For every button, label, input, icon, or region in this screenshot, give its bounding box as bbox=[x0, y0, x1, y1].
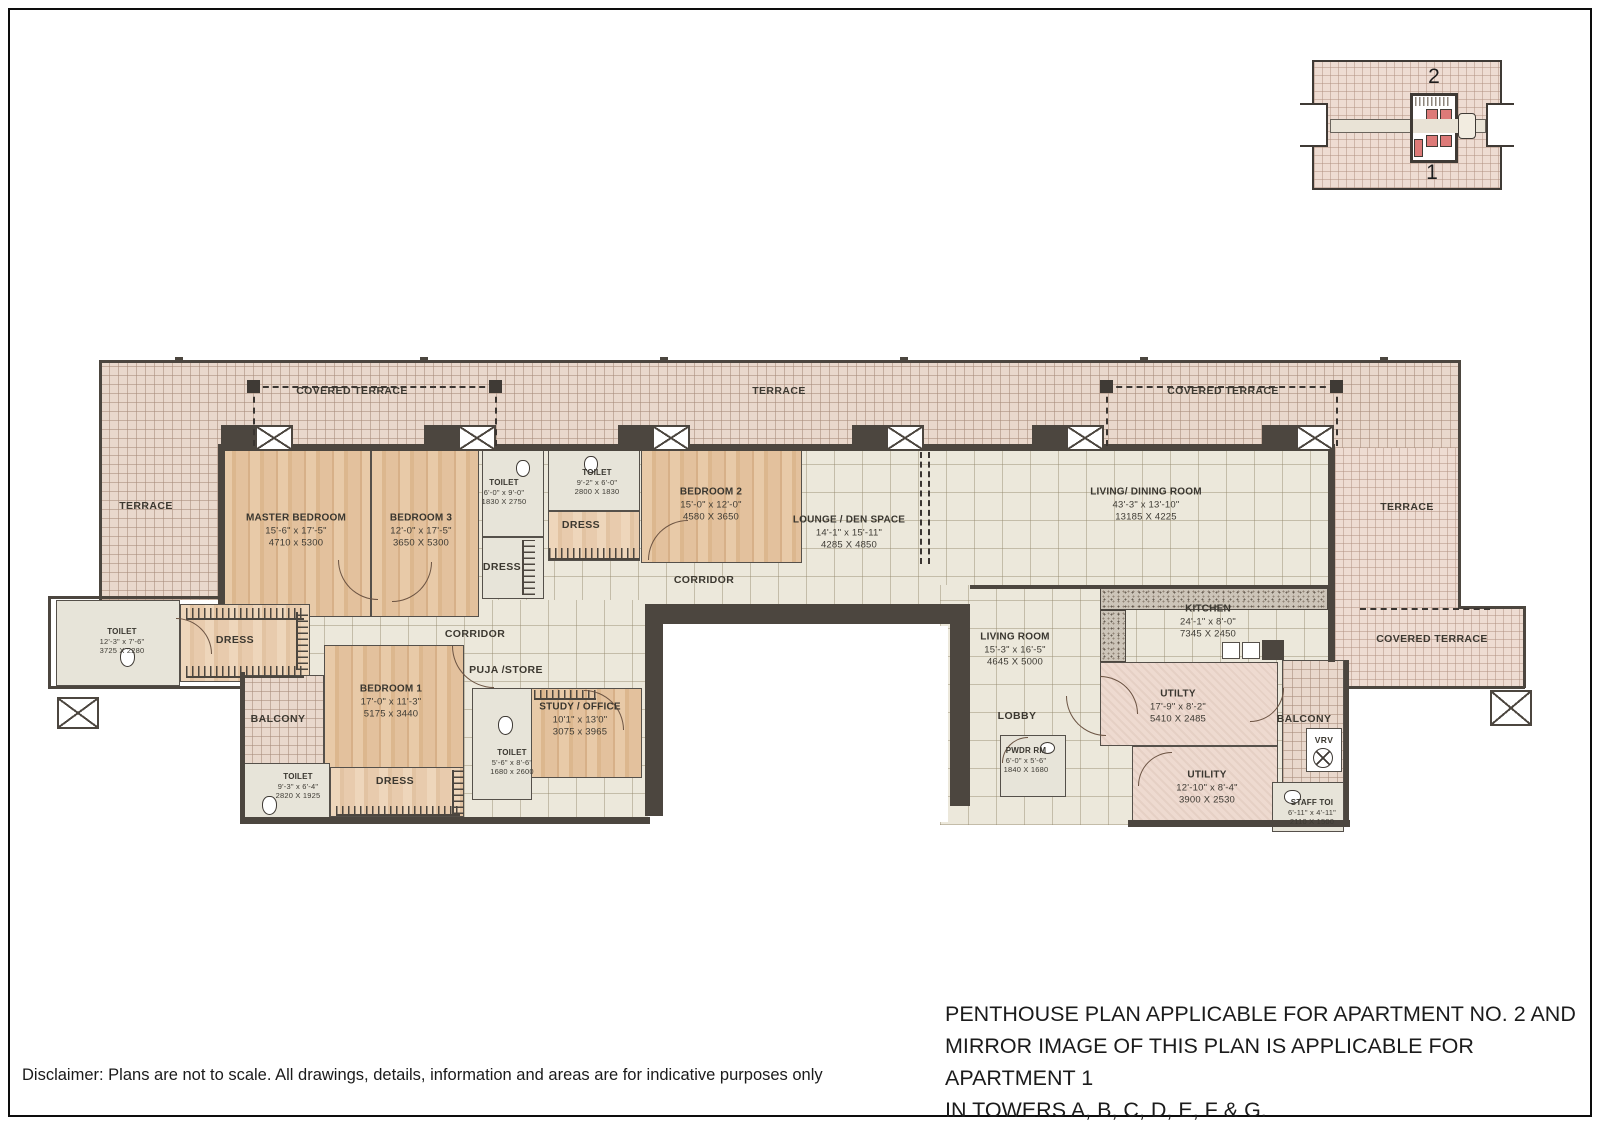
room-label-toilet-a: TOILET 6'-0" x 9'-0" 1830 X 2750 bbox=[482, 478, 527, 507]
shaft-x-box bbox=[458, 425, 496, 451]
key-plan-apartment-1-label: 1 bbox=[1426, 161, 1438, 185]
closet-hatch bbox=[452, 770, 464, 814]
key-plan-core-hatch bbox=[1415, 97, 1451, 106]
toilet-fixture bbox=[516, 460, 530, 477]
room-label-powder-room: PWDR RM 6'-0" x 5'-6" 1840 X 1680 bbox=[1004, 746, 1049, 775]
room-dims-mm: 1680 x 2600 bbox=[490, 767, 534, 777]
area-label-terrace-top: TERRACE bbox=[752, 385, 806, 397]
room-label-toilet-e: TOILET 9'-3" x 6'-4" 2820 X 1925 bbox=[276, 772, 321, 801]
area-label-covered-terrace-right: COVERED TERRACE bbox=[1376, 633, 1488, 645]
area-label-dress-4: DRESS bbox=[376, 775, 414, 787]
area-label-covered-terrace-top-right: COVERED TERRACE bbox=[1167, 385, 1279, 397]
room-dims-mm: 1840 X 1680 bbox=[1004, 765, 1049, 775]
room-dims-mm: 2820 X 1925 bbox=[276, 791, 321, 801]
wall-left-wing-outer bbox=[240, 672, 245, 822]
room-dims-mm: 2800 X 1830 bbox=[575, 487, 620, 497]
wall-toilet-c-bottom bbox=[48, 686, 242, 689]
terrace-right-column bbox=[1335, 448, 1460, 608]
room-label-toilet-d: TOILET 5'-6" x 8'-6" 1680 x 2600 bbox=[490, 748, 534, 777]
room-label-staff-toilet: STAFF TOI 6'-11" x 4'-11" 2110 X 1500 bbox=[1288, 798, 1336, 827]
area-label-corridor-top: CORRIDOR bbox=[674, 574, 734, 586]
shaft-x-box bbox=[652, 425, 690, 451]
area-label-covered-terrace-left: COVERED TERRACE bbox=[296, 385, 408, 397]
room-name: BEDROOM 3 bbox=[390, 512, 452, 525]
area-label-corridor-left: CORRIDOR bbox=[445, 628, 505, 640]
room-name: MASTER BEDROOM bbox=[246, 512, 346, 525]
wall-notch-left bbox=[645, 604, 663, 816]
area-label-puja-store: PUJA /STORE bbox=[469, 664, 543, 676]
column-tick bbox=[420, 357, 428, 362]
column-tick bbox=[1380, 357, 1388, 362]
room-dims-ft: 6'-11" x 4'-11" bbox=[1288, 807, 1336, 817]
room-name: UTILITY bbox=[1176, 769, 1237, 782]
area-label-vrv: VRV bbox=[1315, 735, 1334, 745]
column-block bbox=[221, 425, 255, 451]
room-dims-ft: 6'-0" x 9'-0" bbox=[482, 487, 527, 497]
room-name: TOILET bbox=[575, 468, 620, 478]
lounge-divider-dashed bbox=[928, 452, 930, 564]
wall-notch-top bbox=[645, 604, 970, 624]
area-label-dress-1: DRESS bbox=[216, 634, 254, 646]
covered-terrace-right-area bbox=[1335, 608, 1525, 688]
room-label-bedroom-1: BEDROOM 1 17'-0" x 11'-3" 5175 x 3440 bbox=[360, 683, 422, 721]
column-tick bbox=[660, 357, 668, 362]
shaft-x-box bbox=[1066, 425, 1104, 451]
penthouse-note-line2: MIRROR IMAGE OF THIS PLAN IS APPLICABLE … bbox=[945, 1030, 1600, 1094]
room-dims-mm: 5410 X 2485 bbox=[1150, 713, 1206, 726]
covered-terrace-dashed-drop bbox=[1106, 386, 1108, 446]
key-plan-lift-red bbox=[1426, 135, 1438, 147]
room-name: PWDR RM bbox=[1004, 746, 1049, 756]
column-block bbox=[852, 425, 886, 451]
closet-hatch bbox=[186, 608, 304, 620]
room-name: BEDROOM 1 bbox=[360, 683, 422, 696]
room-label-utility-2: UTILITY 12'-10" x 8'-4" 3900 X 2530 bbox=[1176, 769, 1237, 807]
room-dims-ft: 6'-0" x 5'-6" bbox=[1004, 755, 1049, 765]
terrace-outline-right bbox=[1458, 360, 1461, 608]
shaft-x-box bbox=[1296, 425, 1334, 451]
room-name: KITCHEN bbox=[1180, 603, 1236, 616]
wall-toilet-c-top bbox=[48, 596, 220, 599]
room-dims-mm: 2110 X 1500 bbox=[1288, 817, 1336, 827]
room-dims-ft: 43'-3" x 13'-10" bbox=[1090, 499, 1202, 512]
key-plan-entry-cross bbox=[1458, 113, 1476, 139]
area-label-balcony-left: BALCONY bbox=[251, 713, 306, 725]
covered-terrace-dashed-drop bbox=[1336, 386, 1338, 446]
room-dims-ft: 24'-1" x 8'-0" bbox=[1180, 616, 1236, 629]
terrace-outline-top bbox=[99, 360, 1461, 363]
column-block bbox=[1262, 425, 1296, 451]
lift-x-box-right bbox=[1490, 690, 1532, 726]
room-dims-mm: 1830 X 2750 bbox=[482, 497, 527, 507]
room-dims-mm: 3900 X 2530 bbox=[1176, 794, 1237, 807]
room-name: STUDY / OFFICE bbox=[539, 701, 621, 714]
void-notch-interior bbox=[665, 626, 948, 822]
room-label-bedroom-3: BEDROOM 3 12'-0" x 17'-5" 3650 X 5300 bbox=[390, 512, 452, 550]
closet-hatch bbox=[522, 540, 535, 595]
room-dims-ft: 15'-6" x 17'-5" bbox=[246, 525, 346, 538]
room-label-utility-1: UTILTY 17'-9" x 8'-2" 5410 X 2485 bbox=[1150, 688, 1206, 726]
key-plan-right-notch bbox=[1486, 103, 1514, 147]
kitchen-sink bbox=[1222, 642, 1240, 659]
room-name: TOILET bbox=[490, 748, 534, 758]
room-dims-mm: 3650 X 5300 bbox=[390, 537, 452, 550]
closet-hatch bbox=[186, 666, 304, 678]
room-name: LIVING/ DINING ROOM bbox=[1090, 486, 1202, 499]
kitchen-counter-left bbox=[1100, 610, 1126, 662]
lounge-divider-dashed bbox=[920, 452, 922, 564]
room-dims-ft: 9'-3" x 6'-4" bbox=[276, 781, 321, 791]
room-name: UTILTY bbox=[1150, 688, 1206, 701]
wall-left-wing-bottom bbox=[240, 817, 650, 824]
toilet-d-floor bbox=[472, 688, 532, 800]
room-name: STAFF TOI bbox=[1288, 798, 1336, 808]
room-dims-mm: 4645 X 5000 bbox=[980, 656, 1049, 669]
dash-post bbox=[1100, 380, 1113, 393]
wall-toilet-c-left bbox=[48, 596, 51, 688]
vrv-fan-icon bbox=[1313, 748, 1333, 768]
key-plan-left-notch bbox=[1300, 103, 1328, 147]
terrace-covered-divider-dashed bbox=[1360, 608, 1490, 610]
penthouse-note-line3: IN TOWERS A, B, C, D, E, F & G. bbox=[945, 1094, 1600, 1125]
lift-x-box-left bbox=[57, 697, 99, 729]
column-block bbox=[618, 425, 652, 451]
room-dims-mm: 4710 x 5300 bbox=[246, 537, 346, 550]
key-plan-corridor-arm-left bbox=[1330, 119, 1414, 133]
toilet-fixture bbox=[498, 716, 513, 735]
room-dims-ft: 12'-0" x 17'-5" bbox=[390, 525, 452, 538]
wall-master-left bbox=[218, 444, 225, 604]
area-label-terrace-right: TERRACE bbox=[1380, 501, 1434, 513]
key-plan: 2 1 bbox=[1300, 55, 1515, 195]
room-dims-mm: 3075 x 3965 bbox=[539, 726, 621, 739]
column-tick bbox=[175, 357, 183, 362]
room-label-lounge-den: LOUNGE / DEN SPACE 14'-1" x 15'-11" 4285… bbox=[793, 514, 905, 552]
key-plan-apartment-2-label: 2 bbox=[1428, 65, 1440, 89]
kitchen-stove bbox=[1262, 640, 1284, 660]
room-dims-mm: 4580 X 3650 bbox=[680, 511, 742, 524]
dash-post bbox=[1330, 380, 1343, 393]
room-dims-ft: 10'1" x 13'0" bbox=[539, 714, 621, 727]
room-name: BEDROOM 2 bbox=[680, 486, 742, 499]
area-label-dress-3: DRESS bbox=[562, 519, 600, 531]
room-name: TOILET bbox=[276, 772, 321, 782]
area-label-terrace-left: TERRACE bbox=[119, 500, 173, 512]
room-label-master-bedroom: MASTER BEDROOM 15'-6" x 17'-5" 4710 x 53… bbox=[246, 512, 346, 550]
dash-post bbox=[247, 380, 260, 393]
room-dims-ft: 17'-0" x 11'-3" bbox=[360, 696, 422, 709]
covered-terrace-dashed-drop bbox=[253, 386, 255, 446]
room-dims-mm: 3725 X 2280 bbox=[100, 646, 145, 656]
room-dims-ft: 12'-3" x 7'-6" bbox=[100, 636, 145, 646]
area-label-lobby: LOBBY bbox=[998, 710, 1037, 722]
terrace-top-band bbox=[100, 362, 1460, 448]
disclaimer-text: Disclaimer: Plans are not to scale. All … bbox=[22, 1066, 823, 1085]
room-name: LIVING ROOM bbox=[980, 631, 1049, 644]
key-plan-stair-red bbox=[1414, 139, 1423, 157]
room-name: LOUNGE / DEN SPACE bbox=[793, 514, 905, 527]
closet-hatch bbox=[336, 806, 460, 816]
room-label-bedroom-2: BEDROOM 2 15'-0" x 12'-0" 4580 X 3650 bbox=[680, 486, 742, 524]
column-tick bbox=[1140, 357, 1148, 362]
room-dims-ft: 12'-10" x 8'-4" bbox=[1176, 782, 1237, 795]
wall-notch-right bbox=[950, 604, 970, 806]
room-dims-ft: 9'-2" x 6'-0" bbox=[575, 477, 620, 487]
room-dims-ft: 15'-0" x 12'-0" bbox=[680, 499, 742, 512]
wall-right-living-dining bbox=[1328, 444, 1335, 662]
area-label-balcony-right: BALCONY bbox=[1277, 713, 1332, 725]
key-plan-corridor-through-core bbox=[1413, 119, 1458, 133]
floor-plan-page: COVERED TERRACE TERRACE COVERED TERRACE … bbox=[0, 0, 1600, 1125]
column-tick bbox=[900, 357, 908, 362]
closet-hatch bbox=[549, 548, 639, 560]
room-dims-mm: 4285 X 4850 bbox=[793, 539, 905, 552]
room-dims-ft: 17'-9" x 8'-2" bbox=[1150, 701, 1206, 714]
terrace-outline-step-right bbox=[1523, 606, 1526, 688]
column-block bbox=[1032, 425, 1066, 451]
room-label-living-room: LIVING ROOM 15'-3" x 16'-5" 4645 X 5000 bbox=[980, 631, 1049, 669]
column-block bbox=[424, 425, 458, 451]
room-label-toilet-c: TOILET 12'-3" x 7'-6" 3725 X 2280 bbox=[100, 627, 145, 656]
wall-unit-top bbox=[218, 444, 1334, 451]
room-dims-mm: 7345 X 2450 bbox=[1180, 628, 1236, 641]
closet-hatch bbox=[296, 612, 308, 670]
room-name: TOILET bbox=[100, 627, 145, 637]
area-label-dress-2: DRESS bbox=[483, 561, 521, 573]
key-plan-lift-red bbox=[1440, 135, 1452, 147]
terrace-outline-bottom-right bbox=[1335, 686, 1525, 689]
room-label-study-office: STUDY / OFFICE 10'1" x 13'0" 3075 x 3965 bbox=[539, 701, 621, 739]
room-label-toilet-b: TOILET 9'-2" x 6'-0" 2800 X 1830 bbox=[575, 468, 620, 497]
room-label-kitchen: KITCHEN 24'-1" x 8'-0" 7345 X 2450 bbox=[1180, 603, 1236, 641]
room-dims-mm: 5175 x 3440 bbox=[360, 708, 422, 721]
dash-post bbox=[489, 380, 502, 393]
room-name: TOILET bbox=[482, 478, 527, 488]
penthouse-note: PENTHOUSE PLAN APPLICABLE FOR APARTMENT … bbox=[945, 998, 1600, 1125]
room-dims-ft: 15'-3" x 16'-5" bbox=[980, 644, 1049, 657]
covered-terrace-dashed-drop bbox=[495, 386, 497, 446]
shaft-x-box bbox=[255, 425, 293, 451]
room-dims-ft: 14'-1" x 15'-11" bbox=[793, 527, 905, 540]
room-label-living-dining: LIVING/ DINING ROOM 43'-3" x 13'-10" 131… bbox=[1090, 486, 1202, 524]
wall-right-wing-right bbox=[1344, 660, 1349, 827]
kitchen-sink bbox=[1242, 642, 1260, 659]
room-dims-mm: 13185 X 4225 bbox=[1090, 511, 1202, 524]
penthouse-note-line1: PENTHOUSE PLAN APPLICABLE FOR APARTMENT … bbox=[945, 998, 1600, 1030]
terrace-left-column bbox=[100, 448, 218, 600]
shaft-x-box bbox=[886, 425, 924, 451]
terrace-outline-left bbox=[99, 360, 102, 600]
room-dims-ft: 5'-6" x 8'-6" bbox=[490, 757, 534, 767]
